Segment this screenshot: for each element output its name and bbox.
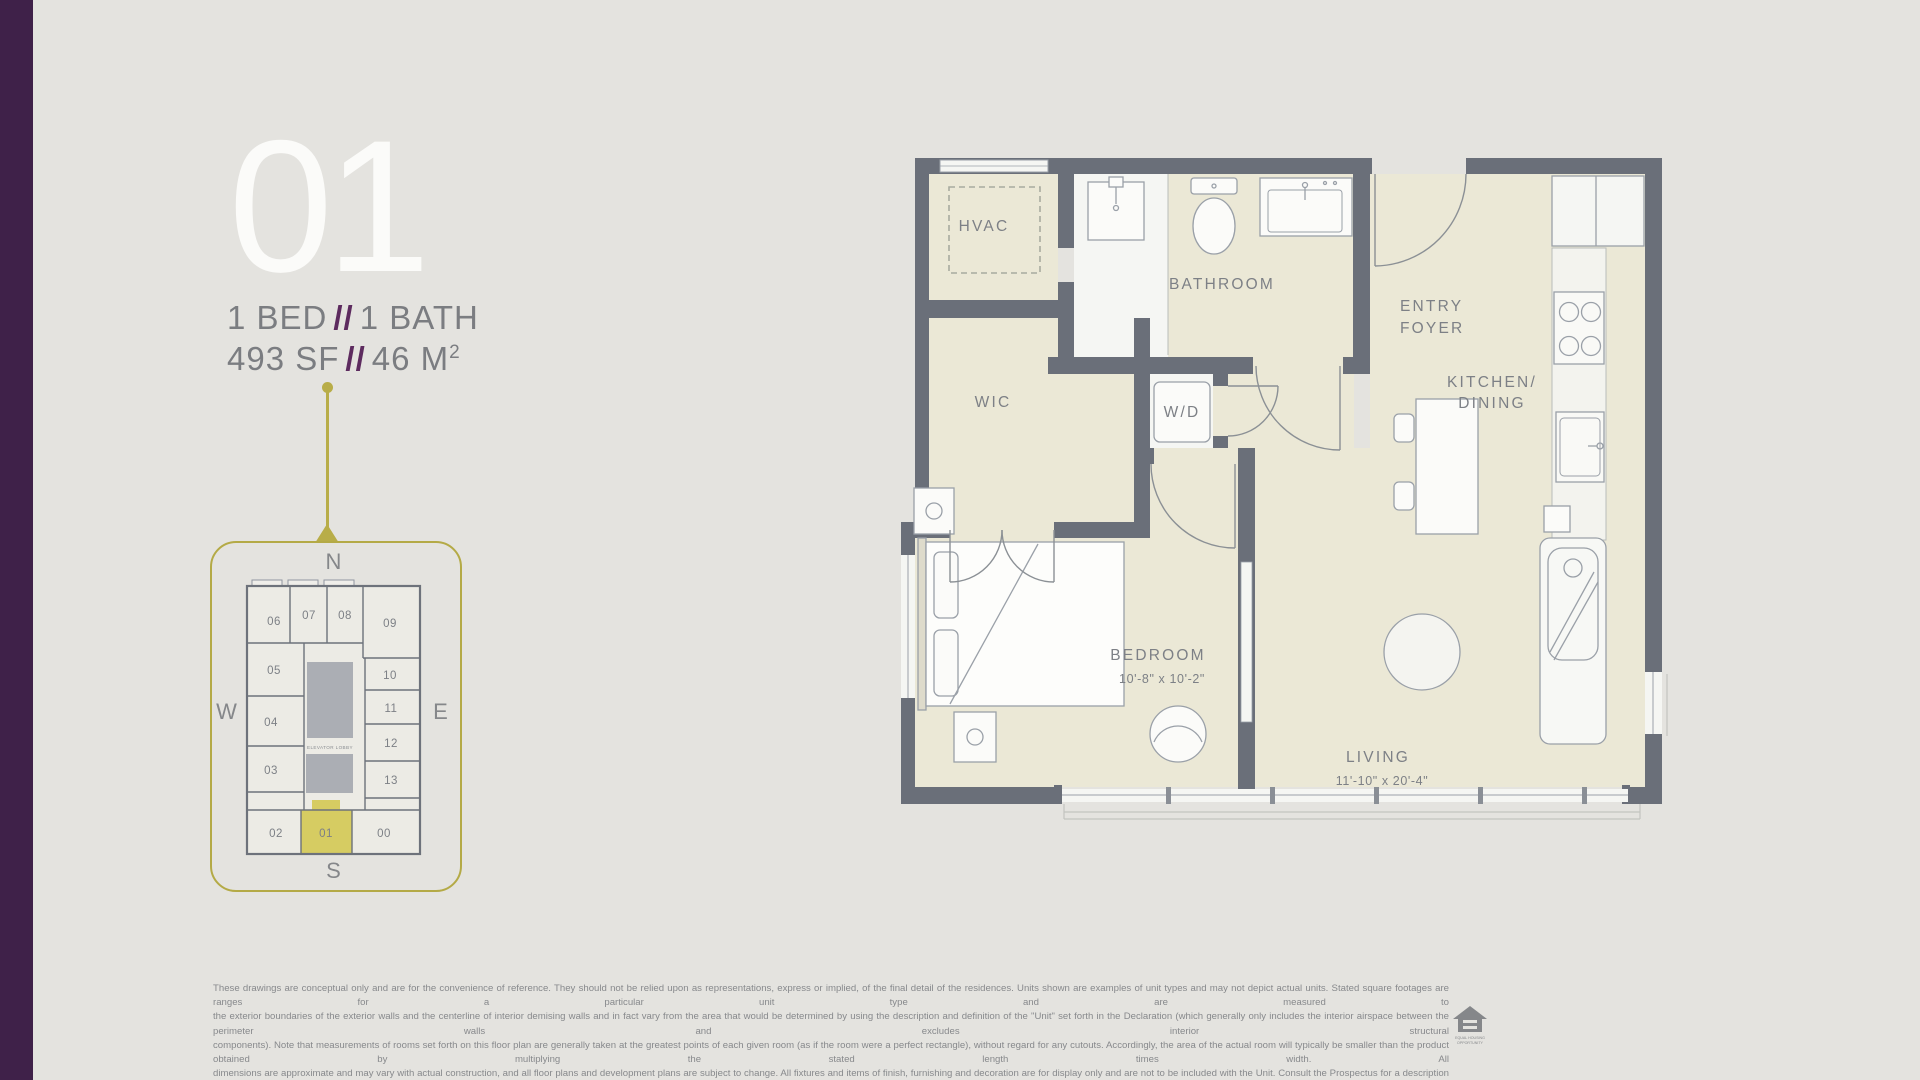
wd-label: W/D	[1164, 404, 1201, 421]
keyplan-unit-label: 13	[384, 775, 398, 787]
disclaimer-line: dimensions are approximate and may vary …	[213, 1067, 1449, 1080]
compass-west: W	[212, 699, 242, 725]
keyplan-unit-label: 02	[269, 828, 283, 840]
unit-number-title: 01	[196, 112, 456, 300]
keyplan-unit-label: 08	[338, 610, 352, 622]
legal-disclaimer: These drawings are conceptual only and a…	[213, 982, 1449, 1080]
side-table	[1544, 506, 1570, 532]
eho-text-1: EQUAL HOUSING	[1455, 1036, 1485, 1040]
compass-east: E	[426, 699, 456, 725]
cooktop	[1554, 292, 1604, 364]
keyplan-elevator-core	[306, 662, 353, 793]
dining-chair	[1394, 414, 1414, 442]
bedroom-chair	[1150, 706, 1206, 762]
hvac-label: HVAC	[959, 218, 1010, 235]
bedroom-sliding-door	[1241, 562, 1252, 722]
keyplan-unit-label: 09	[383, 618, 397, 630]
kitchen-label-1: KITCHEN/	[1447, 374, 1537, 391]
keyplan-unit-label: 07	[302, 610, 316, 622]
nightstand	[914, 488, 954, 534]
bathroom-label: BATHROOM	[1169, 276, 1275, 293]
eho-text-2: OPPORTUNITY	[1457, 1041, 1483, 1045]
shower-fixture	[1088, 177, 1144, 240]
keyplan-unit-label: 10	[383, 670, 397, 682]
keyplan-unit-label-highlighted: 01	[319, 828, 333, 840]
keyplan-unit-label: 00	[377, 828, 391, 840]
eho-equal-bar	[1463, 1020, 1477, 1023]
disclaimer-line: the exterior boundaries of the exterior …	[213, 1010, 1449, 1038]
keyplan-unit-label: 11	[385, 703, 398, 715]
area-metric-sup: 2	[449, 342, 461, 363]
brand-sidebar	[0, 0, 33, 1080]
keyplan-building: ELEVATOR LOBBY 06 07 08 09 05 10 11 04 1…	[240, 578, 425, 860]
window-west	[901, 548, 915, 705]
equal-housing-opportunity-icon: EQUAL HOUSING OPPORTUNITY	[1452, 1005, 1488, 1049]
eho-equal-bar	[1463, 1026, 1477, 1029]
bed-count: 1 BED	[227, 299, 327, 336]
living-label: LIVING	[1346, 749, 1410, 766]
wic-label: WIC	[975, 394, 1012, 411]
keyplan-unit-label: 04	[264, 717, 278, 729]
lounge-chaise	[1540, 538, 1606, 744]
unit-specs-area: 493 SF//46 M2	[227, 340, 647, 378]
kitchen-sink	[1556, 412, 1604, 482]
window-south	[1062, 787, 1628, 804]
dining-chair	[1394, 482, 1414, 510]
floorplan-brochure-page: 01 1 BED//1 BATH 493 SF//46 M2 N S W E E…	[0, 0, 1920, 1080]
elevator-lobby-label: ELEVATOR LOBBY	[307, 745, 353, 750]
living-round-table	[1384, 614, 1460, 690]
living-dims: 11'-10" x 20'-4"	[1336, 774, 1429, 788]
spec-separator-2: //	[339, 340, 371, 377]
unit-specs-bed-bath: 1 BED//1 BATH	[227, 299, 647, 337]
disclaimer-line: These drawings are conceptual only and a…	[213, 982, 1449, 1010]
entry-foyer-label-1: ENTRY	[1400, 298, 1463, 315]
bath-count: 1 BATH	[360, 299, 479, 336]
pillow	[934, 630, 958, 696]
disclaimer-line: components). Note that measurements of r…	[213, 1039, 1449, 1067]
bed	[918, 538, 1124, 710]
window-east	[1645, 672, 1662, 734]
unit-floorplan: HVAC BATHROOM ENTRY FOYER KITCHEN/ DININ…	[888, 152, 1673, 852]
spec-separator: //	[327, 299, 359, 336]
bedroom-dims: 10'-8" x 10'-2"	[1119, 672, 1205, 686]
kitchen-fridge	[1552, 176, 1644, 246]
hvac-vent	[940, 160, 1048, 172]
compass-north: N	[210, 549, 458, 575]
area-sf: 493 SF	[227, 340, 339, 377]
keyplan-unit-label: 03	[264, 765, 278, 777]
keyplan-unit-label: 12	[384, 738, 398, 750]
keyplan-unit-label: 06	[267, 616, 281, 628]
kitchen-label-2: DINING	[1458, 395, 1525, 412]
bedroom-label: BEDROOM	[1110, 647, 1206, 664]
bathroom-vanity	[1260, 178, 1352, 236]
compass-south: S	[210, 858, 458, 884]
nightstand	[954, 712, 996, 762]
keyplan-unit-label: 05	[267, 665, 281, 677]
entry-foyer-label-2: FOYER	[1400, 320, 1464, 337]
pillow	[934, 552, 958, 618]
area-metric: 46 M	[372, 340, 449, 377]
leader-line	[326, 392, 329, 528]
toilet	[1191, 178, 1237, 254]
